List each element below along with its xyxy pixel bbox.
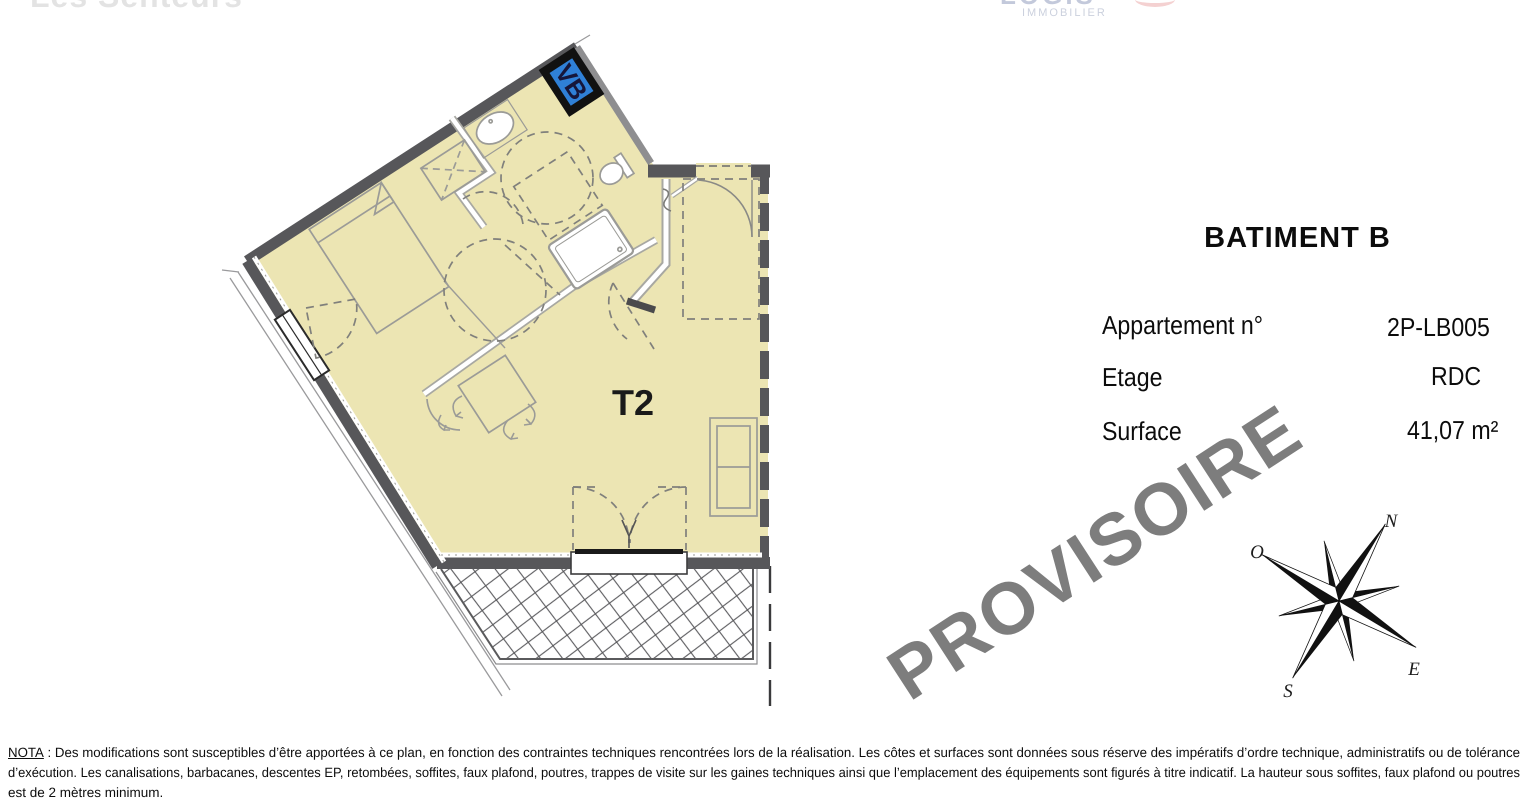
svg-text:O: O	[1250, 542, 1264, 563]
svg-text:S: S	[1283, 681, 1293, 702]
svg-text:N: N	[1384, 511, 1399, 532]
svg-text:E: E	[1407, 659, 1420, 680]
svg-text:T2: T2	[612, 382, 654, 423]
